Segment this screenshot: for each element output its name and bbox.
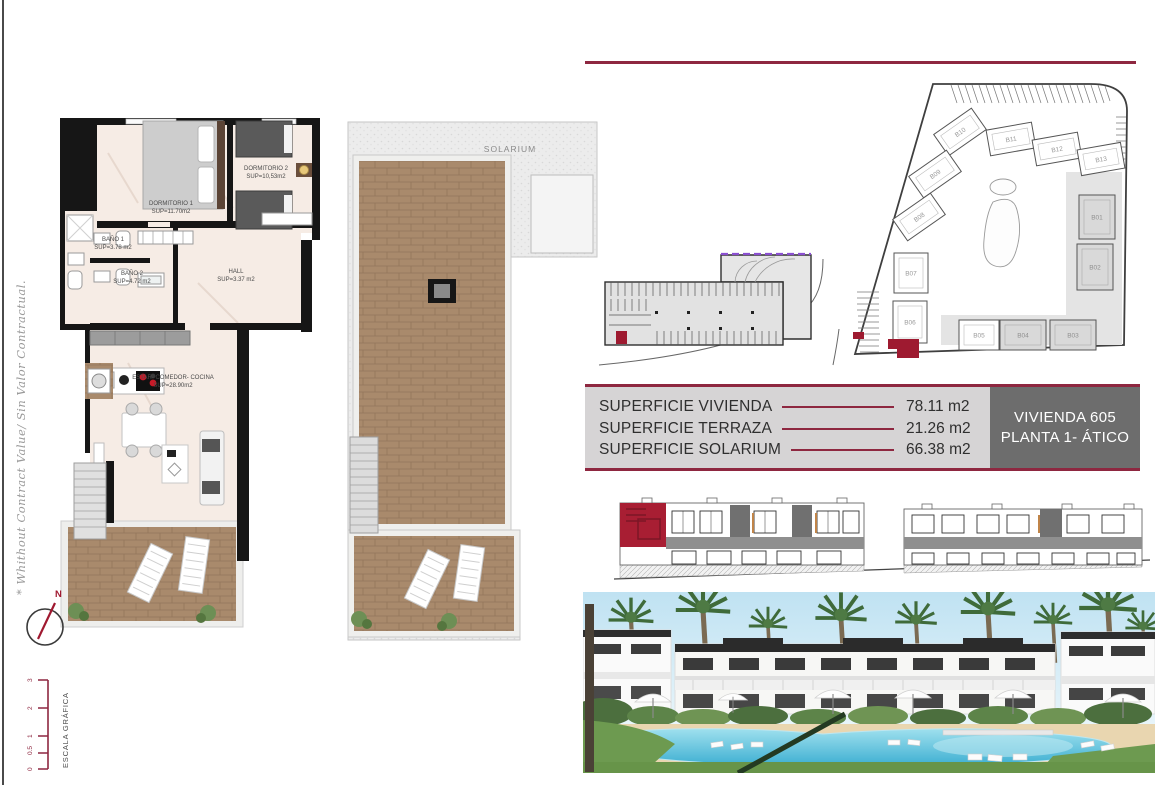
site-plan: B10 B11 B12 B13 B09 B08 <box>833 77 1145 368</box>
room-label: BAÑO 1 <box>102 236 125 243</box>
building-b03: B03 <box>1050 320 1096 350</box>
surface-summary: SUPERFICIE VIVIENDA 78.11 m2 SUPERFICIE … <box>585 384 1140 471</box>
solarium-label: SOLARIUM <box>484 144 536 154</box>
scale-ticks: 3 2 1 0.5 0 <box>27 678 34 771</box>
building-label: B02 <box>1089 265 1101 272</box>
building-b01: B01 <box>1079 195 1115 239</box>
table-row: SUPERFICIE VIVIENDA 78.11 m2 <box>599 396 978 418</box>
room-label: DORMITORIO 2 <box>244 166 289 172</box>
surface-label: SUPERFICIE SOLARIUM <box>599 441 781 459</box>
surface-value: 21.26 m2 <box>906 420 978 438</box>
pool-highlight <box>933 735 1073 757</box>
room-sup: SUP=11.70m2 <box>152 209 191 215</box>
building-elevations <box>612 481 1152 589</box>
building-b02: B02 <box>1077 244 1113 290</box>
scale-tick: 2 <box>27 706 34 710</box>
north-compass-icon: N <box>18 583 78 655</box>
building-label: B01 <box>1091 215 1103 222</box>
plan-sheet: * Whithout Contract Value/ Sin Valor Con… <box>0 0 1170 785</box>
leader-line <box>791 449 894 451</box>
solarium-floor-plan: SOLARIUM <box>345 119 600 642</box>
stairs <box>350 437 378 533</box>
contract-disclaimer-note: * Whithout Contract Value/ Sin Valor Con… <box>14 295 38 595</box>
building-b06: B06 <box>893 301 927 343</box>
elevation-left-building <box>620 498 864 578</box>
concrete-panel <box>531 175 593 253</box>
room-sup: SUP=3.78 m2 <box>94 245 132 251</box>
stairs <box>74 463 106 539</box>
pool-edge <box>943 730 1053 735</box>
scale-bar-lines <box>38 680 48 769</box>
highlighted-unit <box>888 339 919 358</box>
building-label: B03 <box>1067 333 1079 340</box>
surface-value: 66.38 m2 <box>906 441 978 459</box>
highlighted-storage-unit <box>616 331 627 344</box>
building-label: B05 <box>973 333 985 340</box>
room-label: BAÑO 2 <box>121 270 144 277</box>
building-b04: B04 <box>1000 320 1046 350</box>
apartment-floor-plan: DORMITORIO 1 SUP=11.70m2 DORMITORIO 2 SU… <box>58 113 320 635</box>
room-label: ESTAR- COMEDOR- COCINA <box>132 375 214 381</box>
room-sup: SUP=10,53m2 <box>246 174 286 180</box>
room-sup: SUP=3.37 m2 <box>217 277 255 283</box>
header-rule <box>585 61 1136 64</box>
room-sup: SUP=4.72 m2 <box>113 279 151 285</box>
unit-identity-box: VIVIENDA 605 PLANTA 1- ÁTICO <box>990 387 1140 468</box>
room-sup: SUP=28.90m2 <box>153 383 193 389</box>
unit-floor: PLANTA 1- ÁTICO <box>1001 429 1129 446</box>
room-label: DORMITORIO 1 <box>149 201 194 207</box>
surface-label: SUPERFICIE TERRAZA <box>599 420 772 438</box>
scale-tick: 1 <box>27 734 34 738</box>
elevation-right-building <box>904 504 1142 573</box>
surface-table: SUPERFICIE VIVIENDA 78.11 m2 SUPERFICIE … <box>585 387 990 468</box>
scale-tick: 0 <box>27 767 34 771</box>
scale-tick: 0.5 <box>27 746 34 755</box>
leader-line <box>782 406 894 408</box>
scale-title: ESCALA GRÁFICA <box>61 692 70 768</box>
building-label: B04 <box>1017 333 1029 340</box>
leader-line <box>782 428 894 430</box>
garage-plan <box>597 237 844 368</box>
building-label: B07 <box>905 271 917 278</box>
lawn-front <box>583 762 1155 773</box>
building-b05: B05 <box>959 320 999 350</box>
chimney-vent-icon <box>428 279 456 303</box>
building-label: B06 <box>904 320 916 327</box>
highlighted-parking-spot <box>853 332 864 339</box>
graphic-scale-bar: 3 2 1 0.5 0 ESCALA GRÁFICA <box>22 668 82 782</box>
palm-trunk-left-edge <box>585 604 594 772</box>
north-label: N <box>55 589 62 600</box>
scale-tick: 3 <box>27 678 34 682</box>
surface-value: 78.11 m2 <box>906 398 978 416</box>
complex-render-photo <box>583 592 1155 773</box>
building-b07: B07 <box>894 253 928 293</box>
page-edge-rule <box>2 0 4 785</box>
table-row: SUPERFICIE SOLARIUM 66.38 m2 <box>599 439 978 461</box>
room-label: HALL <box>228 269 244 275</box>
surface-label: SUPERFICIE VIVIENDA <box>599 398 772 416</box>
table-row: SUPERFICIE TERRAZA 21.26 m2 <box>599 418 978 440</box>
unit-name: VIVIENDA 605 <box>1014 409 1116 426</box>
windows-upper <box>672 511 859 533</box>
